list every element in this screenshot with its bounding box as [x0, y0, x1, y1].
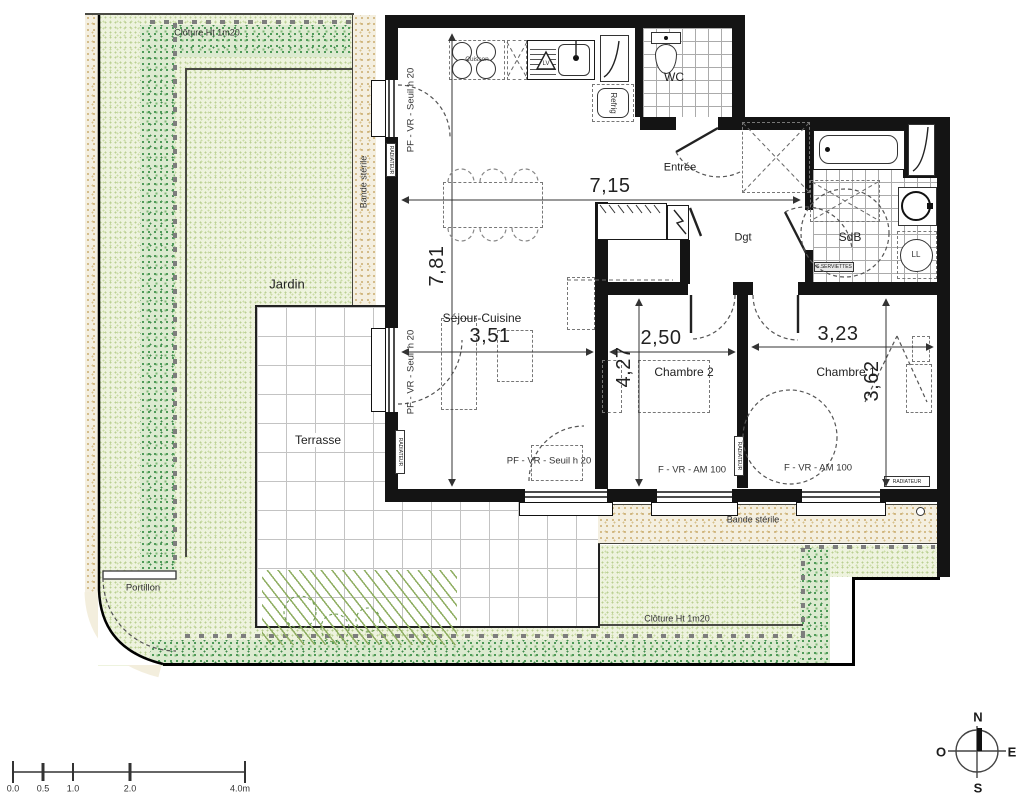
radiator: RADIATEUR — [386, 143, 396, 177]
room-label-entree: Entrée — [664, 163, 696, 174]
compass-north-label: N — [973, 711, 982, 724]
dimension-total-height: 7,81 — [427, 246, 447, 287]
compass — [948, 726, 1006, 778]
dimension-chambre1-height: 3,62 — [862, 361, 882, 402]
scale-bar — [13, 761, 245, 783]
wall — [718, 117, 732, 130]
fence-label-top: Clôture Ht 1m20 — [174, 29, 240, 38]
window-sill — [796, 502, 886, 516]
wall — [880, 489, 950, 502]
towel-radiator: S.SERVIETTES — [814, 262, 854, 272]
compass-west-label: O — [936, 746, 946, 759]
entry-cabinet — [597, 203, 667, 240]
boundary-step-vertical — [852, 577, 855, 666]
hob-label: Cuisson — [465, 57, 488, 64]
compass-south-label: S — [974, 782, 983, 795]
dimension-total-width: 7,15 — [590, 176, 631, 196]
boundary-bottom — [163, 663, 855, 666]
duct-shaft — [600, 35, 629, 82]
wall — [798, 282, 937, 295]
radiator: RADIATEUR — [734, 436, 744, 476]
window-sill — [519, 502, 613, 516]
plot-line-vertical — [185, 68, 187, 557]
toilet-dot — [664, 36, 668, 40]
dimension-chambre2-height: 4,27 — [614, 347, 634, 388]
wall — [385, 15, 745, 28]
radiator-label: RADIATEUR — [397, 438, 403, 467]
dishwasher-label: LV — [543, 61, 550, 67]
drain-circle — [916, 507, 925, 516]
boundary-step-horizontal — [852, 577, 940, 580]
fence-lower-right — [801, 548, 805, 636]
room-label-dgt: Dgt — [734, 233, 751, 244]
room-label-wc: WC — [664, 71, 684, 83]
dining-table — [443, 182, 543, 228]
wall — [733, 282, 753, 295]
plot-line-top — [185, 68, 352, 70]
hedge-left — [140, 25, 175, 573]
scale-tick-05: 0.5 — [37, 785, 50, 794]
compass-east-label: E — [1008, 746, 1017, 759]
faucet-dot — [573, 55, 579, 61]
garden-right-notch — [830, 545, 937, 577]
sterile-band-outer-left — [85, 15, 98, 595]
dimension-sejour-width: 3,51 — [470, 326, 511, 346]
fence-left — [173, 20, 177, 560]
window-sill — [371, 328, 386, 412]
wall — [805, 250, 813, 282]
room-label-sdb: SdB — [839, 231, 862, 243]
towel-radiator-label: S.SERVIETTES — [816, 264, 852, 270]
bathtub-drain — [825, 147, 830, 152]
window-label-pf-sejour: PF - VR - Seuil h 20 — [507, 456, 591, 466]
scale-tick-1: 1.0 — [67, 785, 80, 794]
shower-reserve — [810, 180, 880, 222]
wall — [608, 282, 688, 295]
fence-right-horizontal — [805, 545, 935, 549]
site-top-edge — [85, 13, 354, 15]
window-sill — [651, 502, 738, 516]
drainboard — [530, 45, 556, 75]
wall — [732, 15, 745, 130]
wall — [595, 202, 608, 489]
window-sill — [371, 80, 386, 137]
window-label-f-chambre1: F - VR - AM 100 — [784, 463, 852, 473]
wall — [635, 28, 643, 117]
garden-upper — [98, 15, 352, 305]
radiator-label: RADIATEUR — [388, 146, 394, 175]
window-label-pf-left-bottom: PF - VR - Seuil h 20 — [406, 330, 416, 414]
room-label-chambre2: Chambre 2 — [654, 366, 713, 378]
floor-plan: S.SERVIETTES RADIATEUR RADIATEUR RADIATE… — [0, 0, 1025, 800]
wall — [732, 489, 802, 502]
room-label-terrasse: Terrasse — [292, 433, 344, 447]
wall — [680, 240, 690, 284]
washer-label: LL — [912, 251, 921, 259]
wall — [385, 489, 525, 502]
window-label-f-chambre2: F - VR - AM 100 — [658, 465, 726, 475]
electrical-panel — [667, 205, 689, 240]
room-label-sejour: Séjour-Cuisine — [443, 312, 522, 324]
dimension-chambre1-width: 3,23 — [818, 324, 859, 344]
duct-shaft — [908, 124, 935, 176]
window-label-pf-left-top: PF - VR - Seuil h 20 — [406, 68, 416, 152]
washbasin-tap — [927, 203, 933, 209]
radiator: RADIATEUR — [884, 476, 930, 487]
sterile-band-label-left: Bande stérile — [360, 156, 369, 209]
entry-closet — [742, 122, 810, 193]
radiator: RADIATEUR — [395, 430, 405, 474]
wall — [607, 489, 657, 502]
gate-label: Portillon — [126, 583, 160, 593]
scale-tick-2: 2.0 — [124, 785, 137, 794]
fence-label-bottom: Clôture Ht 1m20 — [644, 615, 710, 624]
room-label-jardin: Jardin — [269, 278, 304, 291]
wall — [640, 117, 676, 130]
duct-reserve — [567, 277, 595, 330]
scale-tick-4: 4.0m — [230, 785, 250, 794]
wall — [937, 130, 950, 577]
fridge-label: Refrig — [609, 92, 617, 113]
kitchen-reserve — [507, 40, 527, 80]
furniture-chambre1 — [906, 364, 932, 413]
planted-bed — [262, 570, 457, 645]
scale-tick-0: 0.0 — [7, 785, 20, 794]
furniture-chambre1 — [912, 336, 930, 362]
radiator-label: RADIATEUR — [893, 479, 922, 485]
sterile-band-label-bottom: Bande stérile — [727, 516, 780, 525]
radiator-label: RADIATEUR — [736, 442, 742, 471]
dimension-chambre2-width: 2,50 — [641, 328, 682, 348]
fence-top — [150, 20, 352, 24]
bathtub-inner — [819, 135, 898, 164]
